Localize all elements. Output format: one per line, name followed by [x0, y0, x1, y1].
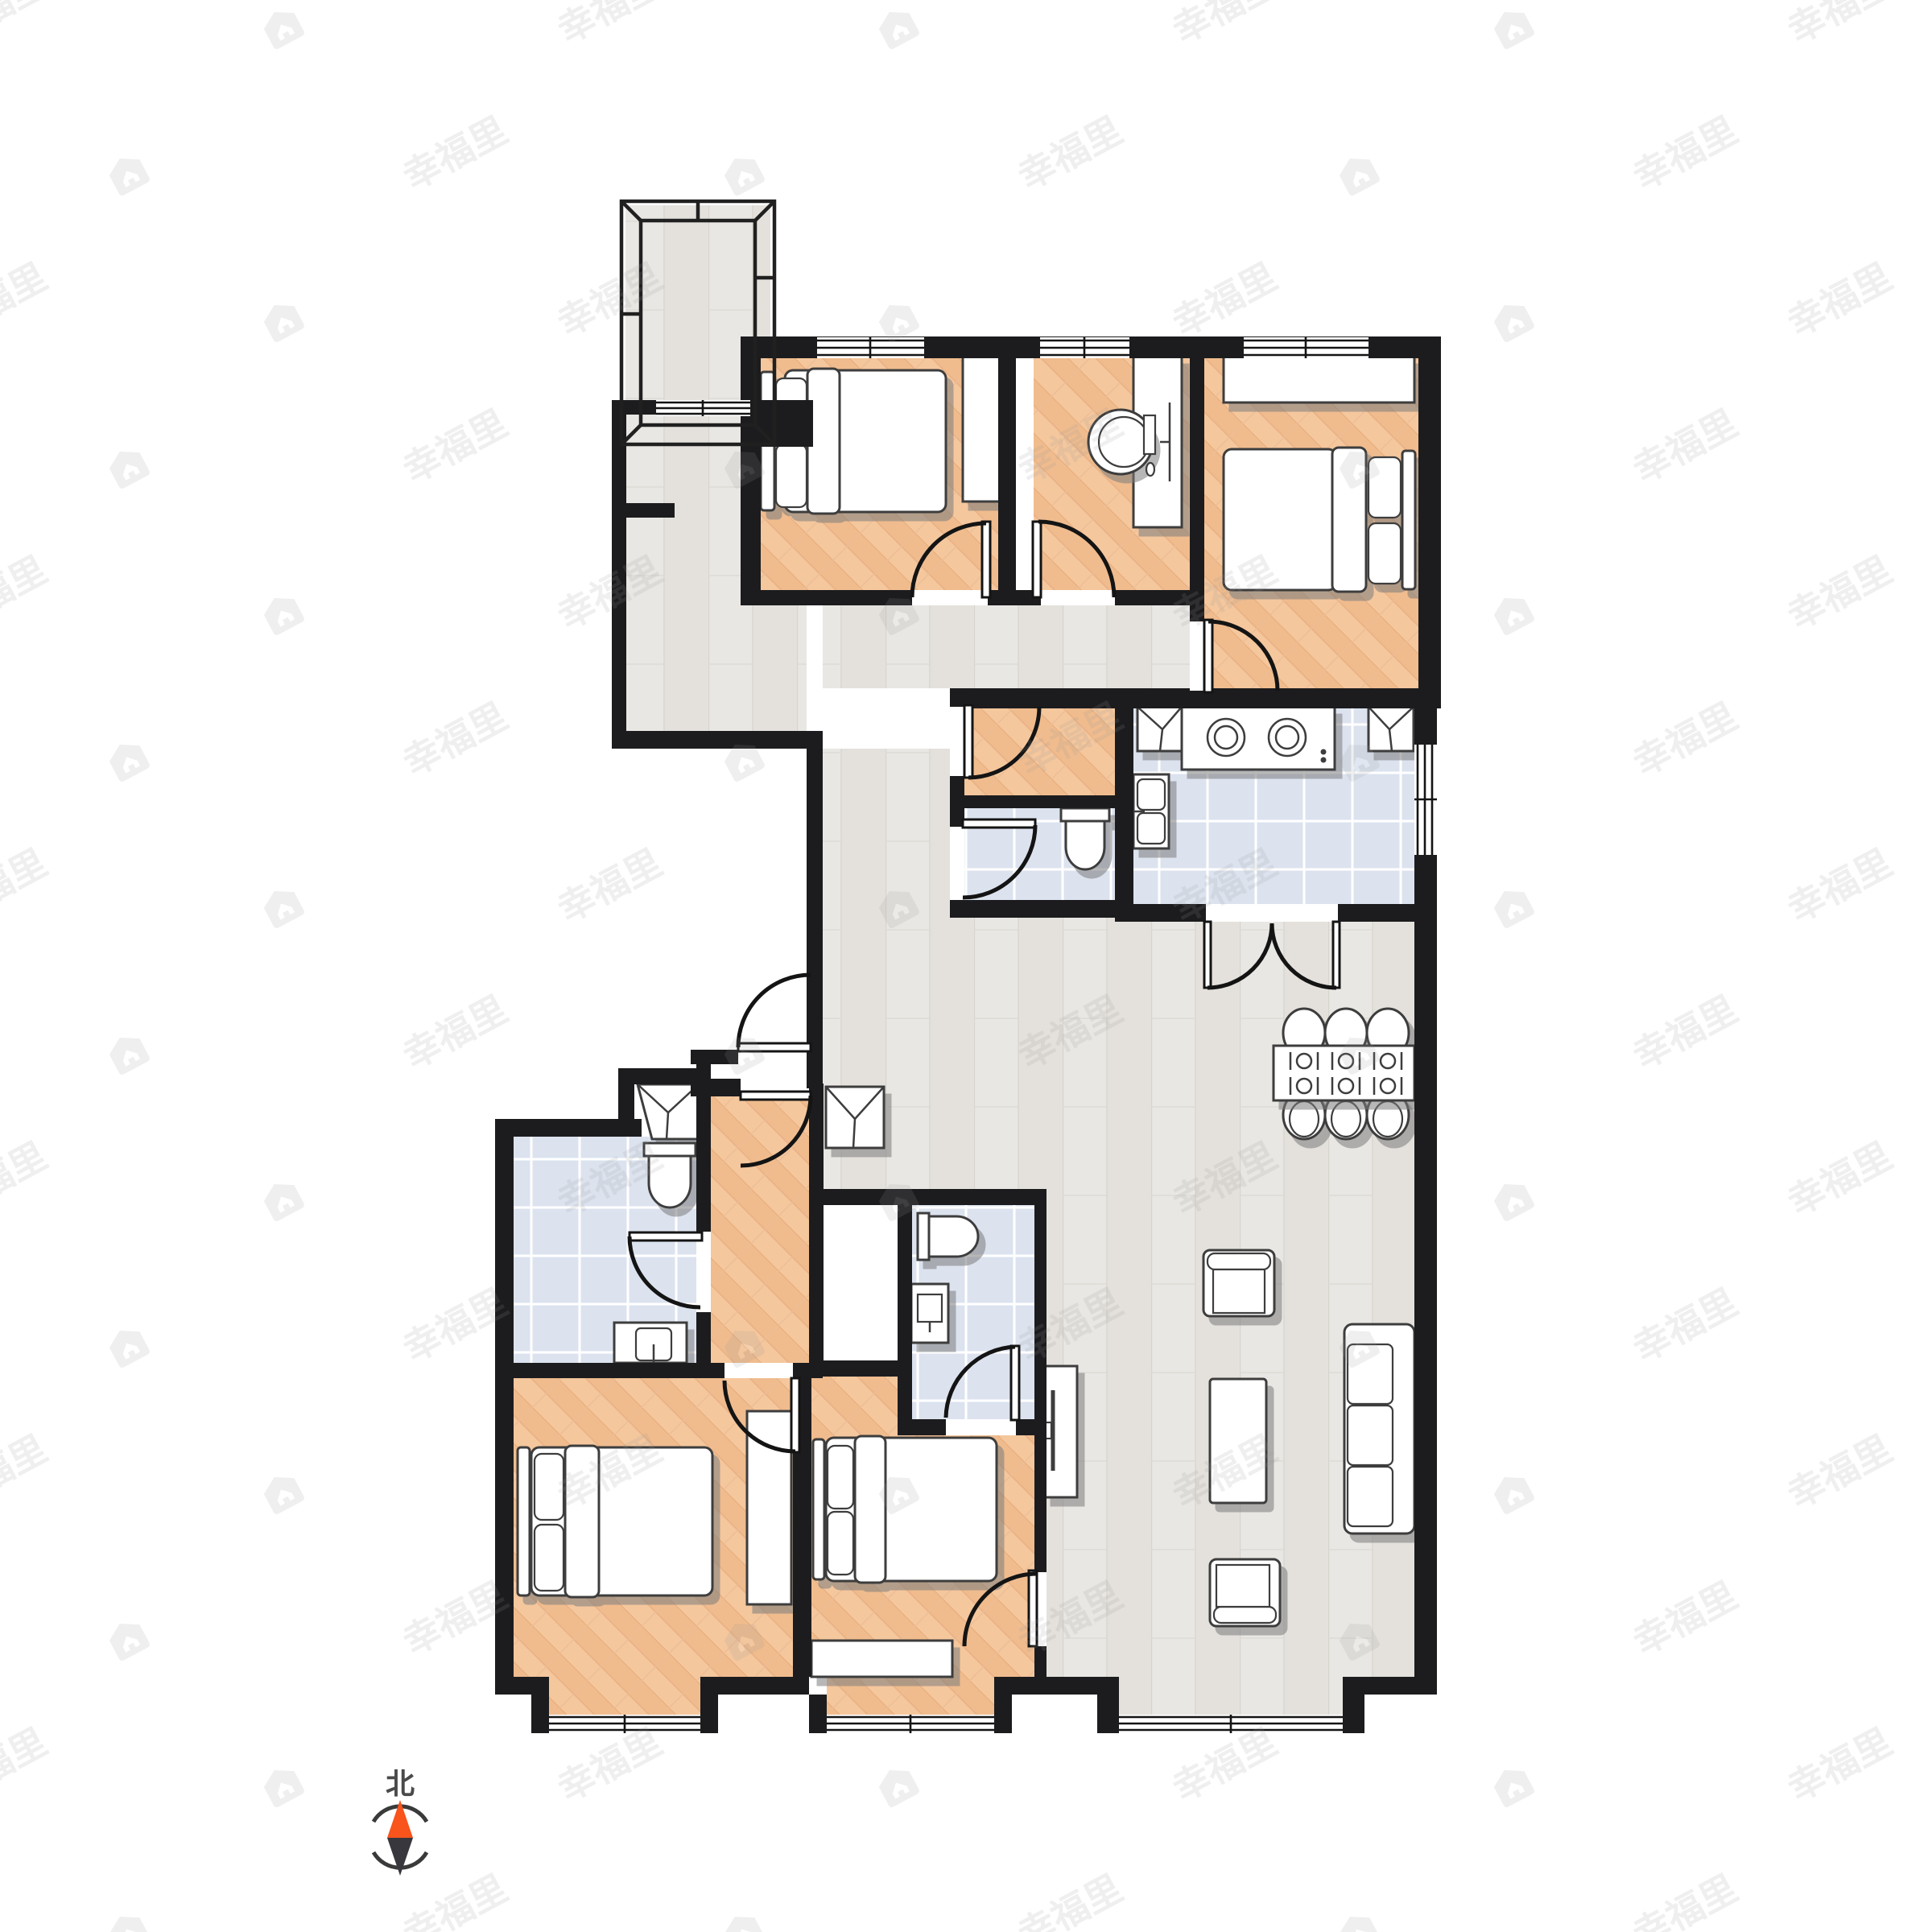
kitchen-sink-icon — [1133, 774, 1169, 848]
svg-text:幸福里: 幸福里 — [551, 841, 668, 931]
wardrobe-ne — [1224, 357, 1414, 402]
hallway-south — [711, 1096, 809, 1363]
dining-set — [1274, 1009, 1414, 1139]
svg-text:幸福里: 幸福里 — [396, 109, 514, 198]
window-bedroom-nw — [817, 337, 924, 358]
svg-text:幸福里: 幸福里 — [1781, 1720, 1898, 1810]
toilet-south-icon — [918, 1213, 978, 1260]
svg-text:幸福里: 幸福里 — [1781, 1427, 1898, 1517]
svg-text:幸福里: 幸福里 — [1626, 1574, 1744, 1663]
svg-text:幸福里: 幸福里 — [1626, 1867, 1744, 1932]
cooktop-icon — [1182, 707, 1335, 770]
svg-text:幸福里: 幸福里 — [0, 1134, 54, 1224]
svg-text:幸福里: 幸福里 — [0, 255, 54, 345]
compass-north-label: 北 — [386, 1767, 415, 1800]
floor-plan: 北 幸福里幸福里幸福里幸福里幸福里幸福里幸福里幸福里幸福里幸福里幸福里幸福里幸福… — [0, 0, 1932, 1932]
svg-text:幸福里: 幸福里 — [1166, 255, 1283, 345]
window-balcony-inner — [656, 400, 750, 416]
bay-window-master — [549, 1715, 700, 1733]
corner-counter-left — [1137, 707, 1182, 751]
svg-text:幸福里: 幸福里 — [396, 402, 514, 491]
armchair-north — [1203, 1250, 1274, 1316]
svg-text:幸福里: 幸福里 — [396, 1867, 514, 1932]
corner-counter-right — [1368, 707, 1414, 751]
wardrobe-nw — [963, 357, 1000, 502]
shoe-cabinet — [826, 1087, 884, 1148]
svg-text:幸福里: 幸福里 — [1166, 0, 1283, 52]
svg-text:幸福里: 幸福里 — [396, 695, 514, 784]
svg-text:幸福里: 幸福里 — [1626, 988, 1744, 1077]
svg-text:幸福里: 幸福里 — [1781, 548, 1898, 638]
svg-text:幸福里: 幸福里 — [1166, 1720, 1283, 1810]
floor-plan-canvas: 北 幸福里幸福里幸福里幸福里幸福里幸福里幸福里幸福里幸福里幸福里幸福里幸福里幸福… — [0, 0, 1932, 1932]
bed-south — [813, 1436, 997, 1583]
dresser-south — [811, 1641, 952, 1677]
vanity-sink-icon — [911, 1284, 948, 1343]
svg-text:幸福里: 幸福里 — [396, 988, 514, 1077]
corner-sink-icon — [638, 1084, 699, 1139]
compass-south-needle — [387, 1838, 413, 1876]
svg-text:幸福里: 幸福里 — [1011, 1867, 1129, 1932]
svg-text:幸福里: 幸福里 — [551, 0, 668, 52]
tv-stand — [1045, 1366, 1077, 1497]
armchair-south — [1210, 1559, 1280, 1626]
svg-text:幸福里: 幸福里 — [1626, 109, 1744, 198]
svg-text:幸福里: 幸福里 — [1011, 109, 1129, 198]
svg-text:幸福里: 幸福里 — [1781, 255, 1898, 345]
window-kitchen-east — [1414, 745, 1437, 855]
svg-text:幸福里: 幸福里 — [0, 841, 54, 931]
svg-text:幸福里: 幸福里 — [1781, 0, 1898, 52]
svg-text:幸福里: 幸福里 — [1626, 1281, 1744, 1370]
svg-text:幸福里: 幸福里 — [1626, 402, 1744, 491]
svg-text:幸福里: 幸福里 — [0, 1720, 54, 1810]
compass: 北 — [374, 1767, 427, 1876]
svg-text:幸福里: 幸福里 — [1626, 695, 1744, 784]
svg-text:幸福里: 幸福里 — [0, 0, 54, 52]
toilet-central-icon — [1061, 808, 1109, 869]
svg-text:幸福里: 幸福里 — [1781, 841, 1898, 931]
svg-text:幸福里: 幸福里 — [1781, 1134, 1898, 1224]
window-study — [1040, 337, 1129, 358]
washing-machine-icon — [614, 1323, 687, 1363]
window-bedroom-ne — [1244, 337, 1368, 358]
bay-window-living — [1119, 1715, 1343, 1733]
svg-text:幸福里: 幸福里 — [551, 1720, 668, 1810]
svg-text:幸福里: 幸福里 — [0, 1427, 54, 1517]
svg-text:幸福里: 幸福里 — [0, 548, 54, 638]
bay-window-bedroom-south — [827, 1715, 994, 1733]
